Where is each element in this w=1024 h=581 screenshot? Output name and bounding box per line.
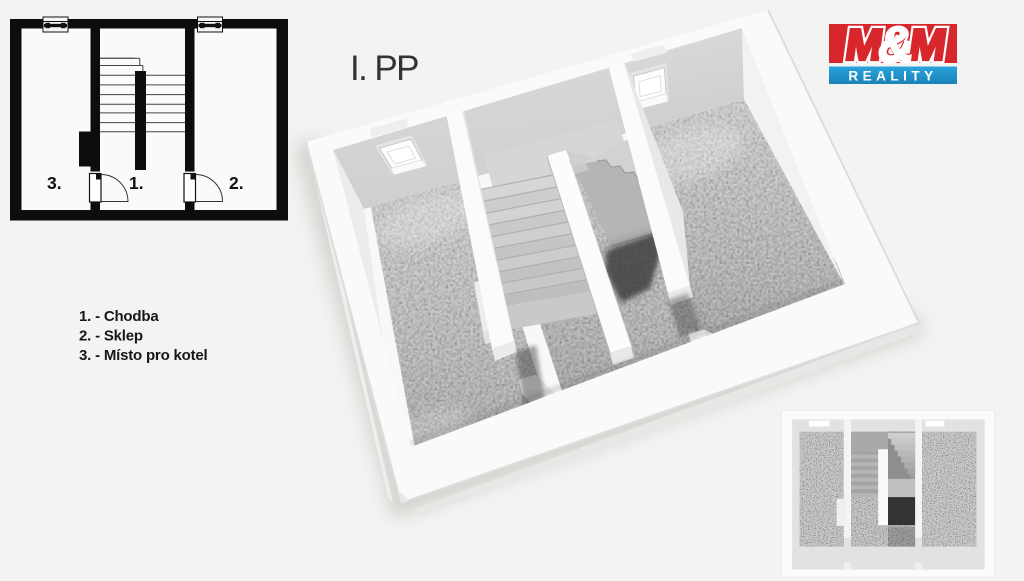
svg-text:3. - Místo pro kotel: 3. - Místo pro kotel — [79, 347, 208, 364]
svg-text:I. PP: I. PP — [350, 49, 418, 88]
svg-text:2. - Sklep: 2. - Sklep — [79, 328, 143, 345]
svg-text:1.: 1. — [129, 173, 144, 193]
svg-text:2.: 2. — [229, 173, 244, 193]
svg-text:REALITY: REALITY — [848, 69, 937, 84]
svg-text:3.: 3. — [47, 173, 62, 193]
svg-text:1. - Chodba: 1. - Chodba — [79, 308, 159, 325]
